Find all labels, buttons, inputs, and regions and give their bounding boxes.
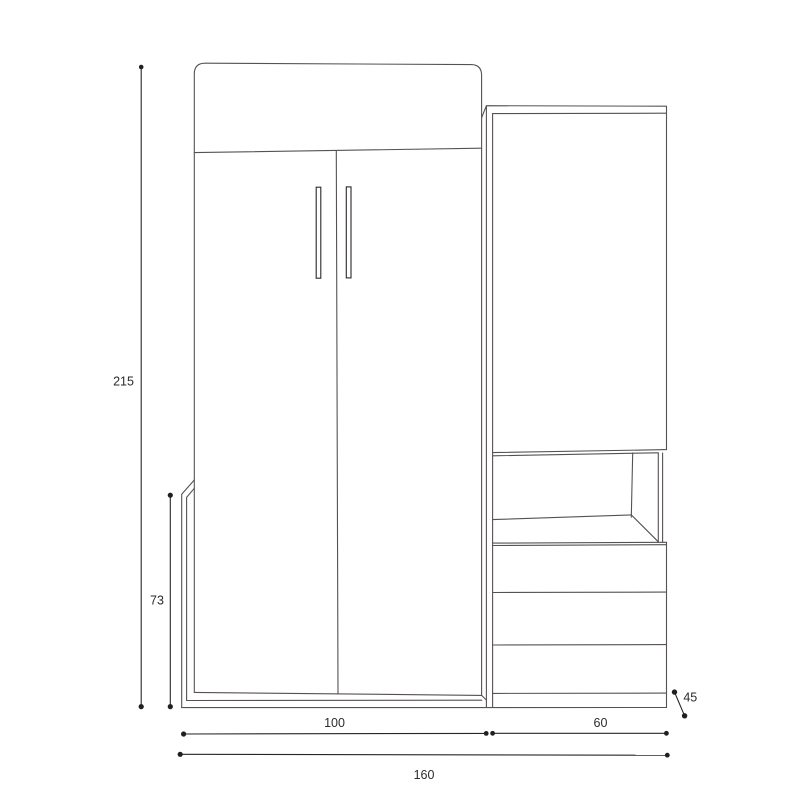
svg-text:160: 160 [414, 768, 435, 782]
svg-text:60: 60 [594, 716, 608, 730]
svg-text:215: 215 [113, 375, 134, 389]
svg-text:45: 45 [683, 691, 697, 705]
svg-text:100: 100 [324, 716, 345, 730]
svg-text:73: 73 [150, 594, 164, 608]
